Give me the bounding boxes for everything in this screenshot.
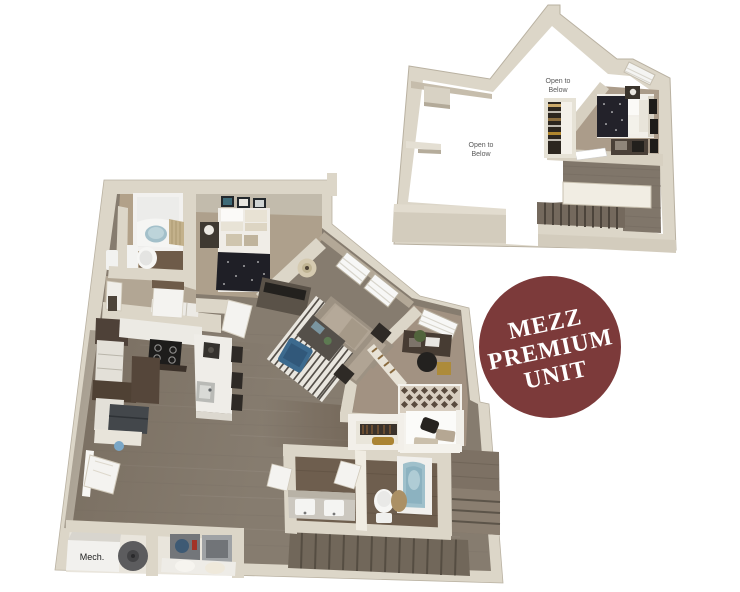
svg-text:Open to: Open to — [546, 78, 571, 85]
svg-text:Below: Below — [471, 151, 491, 158]
svg-text:Below: Below — [548, 87, 568, 94]
svg-text:Mech.: Mech. — [80, 552, 105, 562]
svg-text:Open to: Open to — [469, 142, 494, 149]
